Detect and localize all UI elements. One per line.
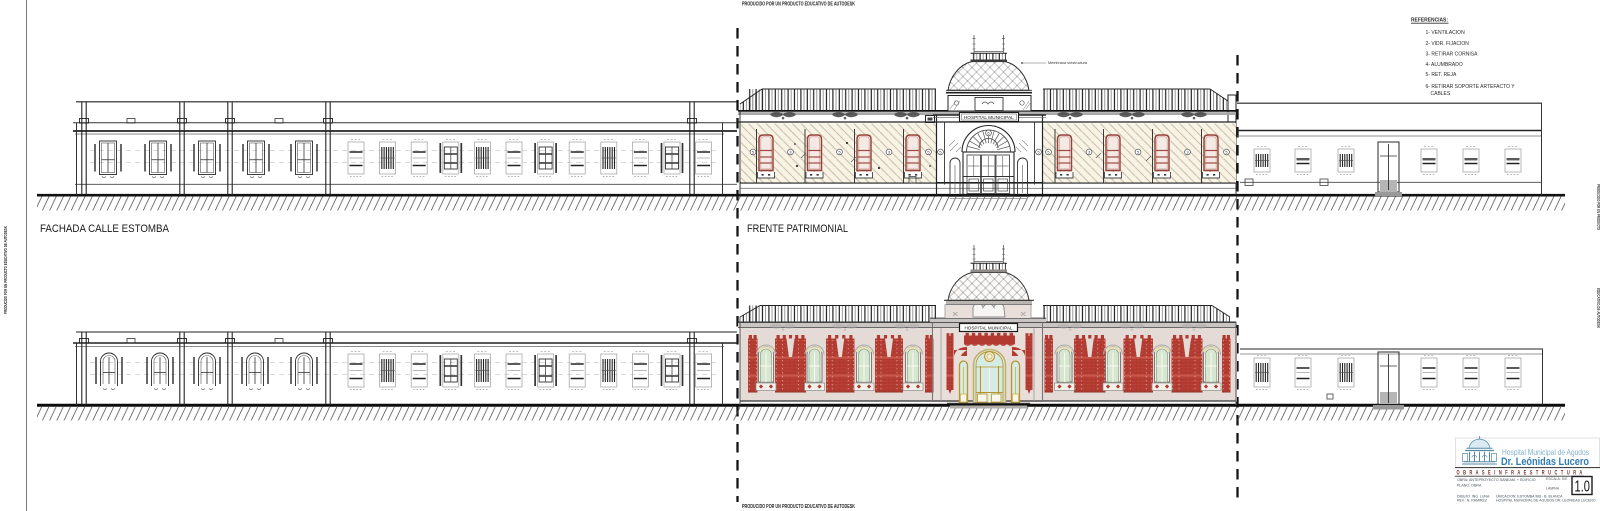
svg-text:Membrana s/estructura: Membrana s/estructura: [1048, 61, 1088, 65]
svg-text:4- ALUMBRADO: 4- ALUMBRADO: [1426, 62, 1463, 68]
svg-text:REFERENCIAS:: REFERENCIAS:: [1411, 18, 1448, 24]
svg-text:6- RETIRAR SOPORTE ARTEFACTO Y: 6- RETIRAR SOPORTE ARTEFACTO Y: [1426, 84, 1516, 90]
svg-text:1.0: 1.0: [1575, 479, 1591, 496]
svg-text:HOSPITAL MUNICIPAL: HOSPITAL MUNICIPAL: [965, 326, 1014, 331]
svg-text:REV.: N. RAMIREZ: REV.: N. RAMIREZ: [1457, 499, 1488, 503]
svg-text:ESCALA: S/E: ESCALA: S/E: [1546, 477, 1568, 481]
svg-text:2- VIDR. FIJACION: 2- VIDR. FIJACION: [1426, 41, 1470, 47]
svg-text:PLANO: OBRA: PLANO: OBRA: [1457, 484, 1482, 488]
svg-text:FRENTE PATRIMONIAL: FRENTE PATRIMONIAL: [747, 223, 848, 235]
svg-text:LAMINA: LAMINA: [1546, 487, 1560, 491]
svg-text:PRODUCIDO POR UN PRODUCTO EDUC: PRODUCIDO POR UN PRODUCTO EDUCATIVO DE A…: [742, 2, 855, 8]
svg-text:5- RET. REJA: 5- RET. REJA: [1426, 72, 1458, 78]
svg-text:CABLES: CABLES: [1431, 91, 1451, 97]
svg-text:Dr. Leónidas Lucero: Dr. Leónidas Lucero: [1501, 456, 1589, 468]
svg-text:OBRA: ANTEPROYECTO SANEAM. + E: OBRA: ANTEPROYECTO SANEAM. + EDIFICIO: [1457, 478, 1536, 482]
svg-text:PRODUCIDO POR UN PRODUCTO EDUC: PRODUCIDO POR UN PRODUCTO EDUCATIVO DE A…: [3, 226, 8, 314]
svg-text:EDUCATIVO DE AUTODESK: EDUCATIVO DE AUTODESK: [1596, 288, 1600, 328]
svg-text:3- RETIRAR CORNISA: 3- RETIRAR CORNISA: [1426, 52, 1479, 58]
svg-text:O B R A S E I N F R A E S T: O B R A S E I N F R A E S T R U C T U R …: [1457, 470, 1584, 477]
svg-text:HOSPITAL MUNICIPAL DE AGUDOS D: HOSPITAL MUNICIPAL DE AGUDOS DR. LEONIDA…: [1496, 499, 1596, 503]
svg-text:PRODUCIDO POR UN PRODUCTO: PRODUCIDO POR UN PRODUCTO: [1596, 184, 1600, 230]
svg-text:FACHADA CALLE ESTOMBA: FACHADA CALLE ESTOMBA: [40, 223, 170, 235]
svg-text:HOSPITAL MUNICIPAL: HOSPITAL MUNICIPAL: [964, 115, 1014, 120]
svg-text:PRODUCIDO POR UN PRODUCTO EDUC: PRODUCIDO POR UN PRODUCTO EDUCATIVO DE A…: [742, 504, 855, 510]
svg-text:1- VENTILACION: 1- VENTILACION: [1426, 30, 1466, 36]
